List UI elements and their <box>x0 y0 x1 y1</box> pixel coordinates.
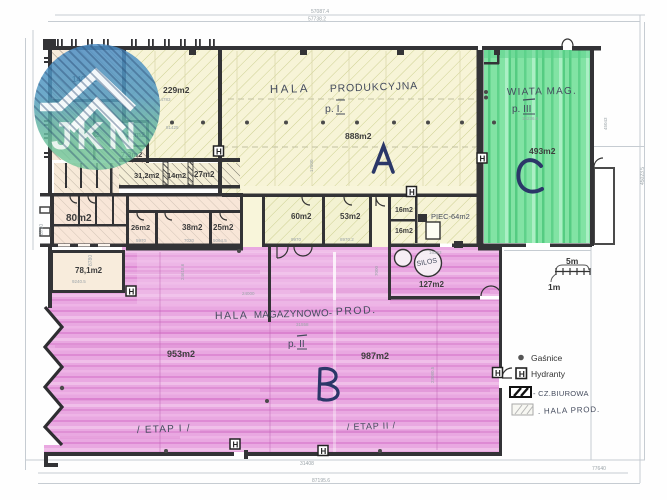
svg-text:31,2m2: 31,2m2 <box>134 171 159 180</box>
svg-text:26m2: 26m2 <box>131 223 150 232</box>
svg-text:PROD.: PROD. <box>336 304 377 318</box>
svg-text:14m2: 14m2 <box>167 171 186 180</box>
svg-text:24000: 24000 <box>242 291 255 296</box>
svg-text:9240.5: 9240.5 <box>72 279 86 284</box>
svg-text:16303: 16303 <box>429 250 442 255</box>
svg-text:p. II: p. II <box>288 339 305 350</box>
svg-text:PIEC-64m2: PIEC-64m2 <box>431 212 470 221</box>
svg-text:p. III: p. III <box>512 104 531 115</box>
svg-text:7000: 7000 <box>374 265 379 276</box>
svg-text:H: H <box>129 288 135 297</box>
svg-text:H: H <box>409 188 415 197</box>
svg-text:16m2: 16m2 <box>395 228 413 235</box>
svg-text:23080.5: 23080.5 <box>430 366 435 383</box>
svg-text:1m: 1m <box>548 282 561 292</box>
svg-text:14783: 14783 <box>158 97 171 102</box>
svg-text:987m2: 987m2 <box>361 351 389 361</box>
svg-text:80m2: 80m2 <box>66 213 92 224</box>
svg-text:p. I.: p. I. <box>325 103 343 115</box>
svg-text:HALA: HALA <box>270 83 310 96</box>
svg-text:WIATA MAG.: WIATA MAG. <box>507 86 577 98</box>
svg-text:81425: 81425 <box>166 125 179 130</box>
svg-text:Gaśnice: Gaśnice <box>531 353 562 363</box>
svg-text:953m2: 953m2 <box>167 349 195 359</box>
svg-text:H: H <box>216 148 222 157</box>
svg-text:16236.5: 16236.5 <box>522 116 539 121</box>
svg-text:/ ETAP II /: / ETAP II / <box>347 420 396 432</box>
svg-text:57738.2: 57738.2 <box>308 17 326 23</box>
svg-text:45043: 45043 <box>603 117 608 130</box>
svg-text:31408: 31408 <box>300 461 314 467</box>
svg-text:9970: 9970 <box>291 237 302 242</box>
svg-text:H: H <box>321 447 327 456</box>
svg-text:H: H <box>480 155 486 164</box>
svg-text:60m2: 60m2 <box>291 212 312 221</box>
svg-text:45023.5: 45023.5 <box>640 167 646 185</box>
svg-text:38m2: 38m2 <box>182 223 203 232</box>
svg-text:MAGAZYNOWO-: MAGAZYNOWO- <box>254 308 333 321</box>
svg-text:7020: 7020 <box>184 238 195 243</box>
svg-text:127m2: 127m2 <box>419 280 444 289</box>
svg-text:H: H <box>495 369 501 378</box>
svg-text:- CZ.BIUROWA: - CZ.BIUROWA <box>533 389 589 398</box>
svg-text:888m2: 888m2 <box>345 131 372 141</box>
svg-text:57087.4: 57087.4 <box>311 9 329 15</box>
svg-text:5970: 5970 <box>136 238 147 243</box>
svg-text:31558: 31558 <box>296 322 309 327</box>
svg-text:Hydranty: Hydranty <box>531 369 566 379</box>
svg-text:78,1m2: 78,1m2 <box>75 266 103 275</box>
svg-text:8780: 8780 <box>88 255 94 266</box>
svg-text:16m2: 16m2 <box>395 207 413 214</box>
svg-text:493m2: 493m2 <box>529 146 556 156</box>
svg-text:5064.5: 5064.5 <box>213 238 227 243</box>
svg-text:8970.2: 8970.2 <box>340 237 354 242</box>
svg-text:H: H <box>233 441 239 450</box>
svg-text:17500: 17500 <box>309 159 314 172</box>
svg-text:27m2: 27m2 <box>194 170 215 179</box>
svg-text:24618.6: 24618.6 <box>180 263 185 280</box>
svg-text:25m2: 25m2 <box>213 223 234 232</box>
svg-text:77640: 77640 <box>592 466 606 472</box>
svg-text:H: H <box>519 369 525 379</box>
svg-text:53m2: 53m2 <box>340 212 361 221</box>
svg-text:/ ETAP I /: / ETAP I / <box>137 423 191 436</box>
svg-text:229m2: 229m2 <box>163 85 190 95</box>
svg-text:87195.6: 87195.6 <box>312 478 330 484</box>
svg-text:8790: 8790 <box>39 224 45 235</box>
svg-text:HALA: HALA <box>215 309 249 322</box>
